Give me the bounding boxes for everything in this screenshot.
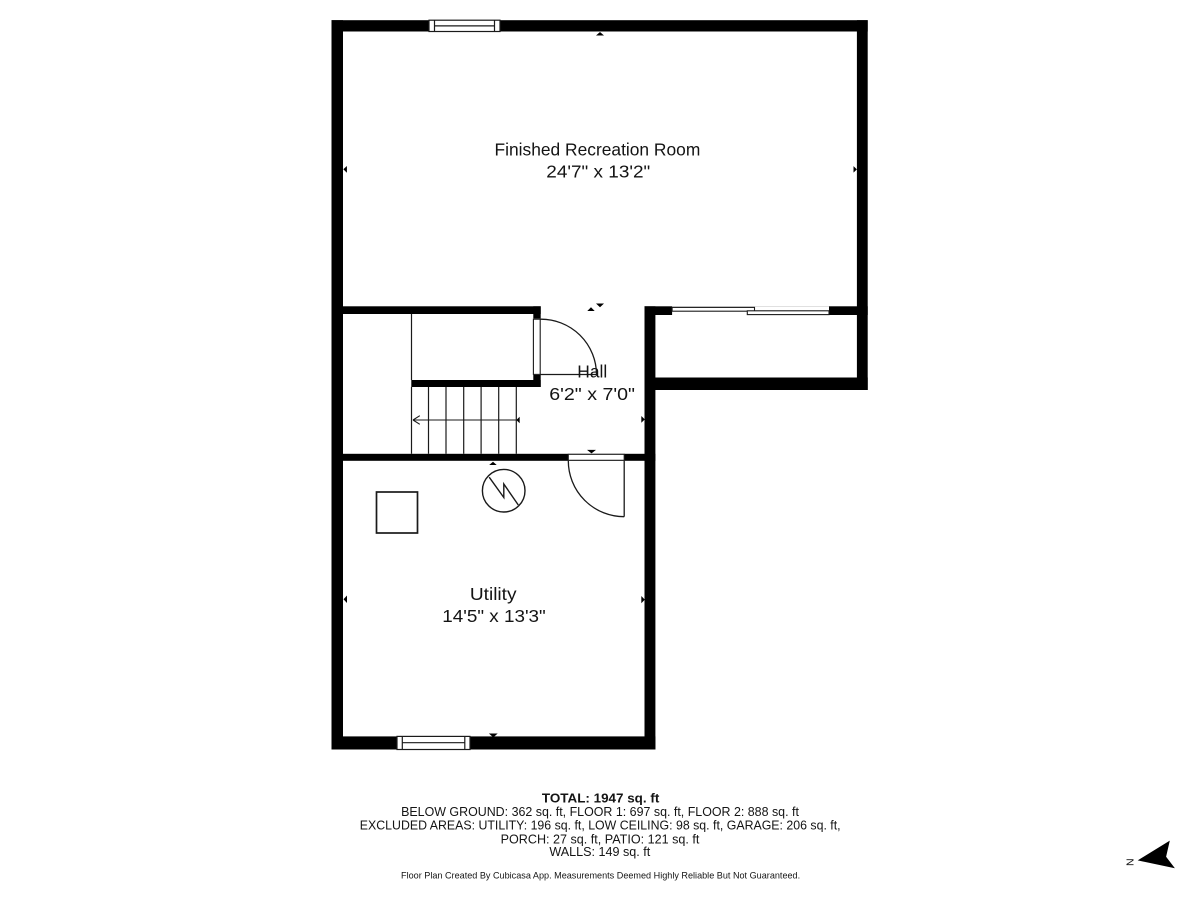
svg-text:BELOW GROUND: 362 sq. ft, FLOO: BELOW GROUND: 362 sq. ft, FLOOR 1: 697 s… <box>401 805 799 819</box>
svg-text:Hall: Hall <box>577 362 607 382</box>
svg-text:EXCLUDED AREAS: UTILITY: 196 s: EXCLUDED AREAS: UTILITY: 196 sq. ft, LOW… <box>360 819 841 833</box>
svg-text:6'2" x 7'0": 6'2" x 7'0" <box>549 384 635 404</box>
svg-text:TOTAL: 1947 sq. ft: TOTAL: 1947 sq. ft <box>542 791 660 805</box>
svg-text:N: N <box>1124 858 1136 866</box>
svg-text:14'5" x 13'3": 14'5" x 13'3" <box>442 606 546 626</box>
svg-text:Utility: Utility <box>470 584 517 604</box>
svg-text:Floor Plan Created By Cubicasa: Floor Plan Created By Cubicasa App. Meas… <box>401 871 800 881</box>
svg-text:PORCH: 27 sq. ft, PATIO: 121 s: PORCH: 27 sq. ft, PATIO: 121 sq. ft <box>501 832 700 846</box>
svg-text:Finished Recreation Room: Finished Recreation Room <box>495 140 701 160</box>
svg-text:24'7" x 13'2": 24'7" x 13'2" <box>546 162 650 182</box>
svg-text:WALLS: 149 sq. ft: WALLS: 149 sq. ft <box>549 845 650 859</box>
